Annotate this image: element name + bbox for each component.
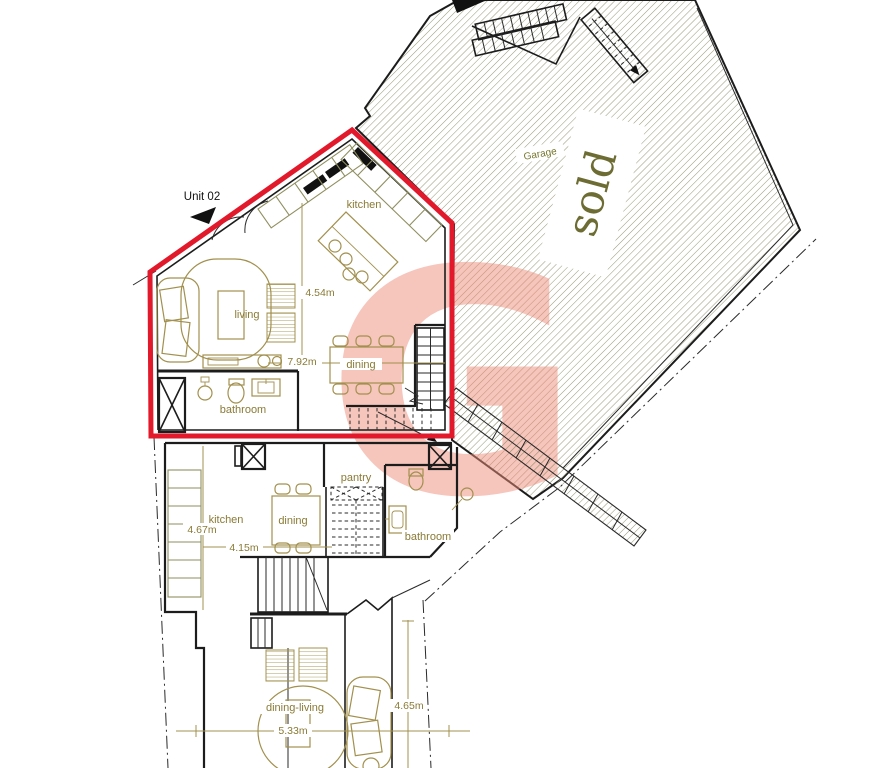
basin xyxy=(198,386,212,400)
dim-label-792: 7.92m xyxy=(287,356,316,368)
room-label-living: living xyxy=(234,309,259,321)
shelf-unit xyxy=(299,648,327,681)
room-label-bathroom-ff: bathroom xyxy=(405,531,451,543)
dim-label-533: 5.33m xyxy=(278,725,307,737)
shaft-box xyxy=(235,444,265,469)
ground-floor-area: dining-living 5.33m 4.65m xyxy=(176,557,470,768)
unit02-pointer-icon xyxy=(190,207,216,224)
floor-plan-page: Garage sold G xyxy=(0,0,874,768)
dim-label-467: 4.67m xyxy=(187,524,216,536)
room-label-bathroom-unit02: bathroom xyxy=(220,404,266,416)
room-label-dining-ff: dining xyxy=(278,515,307,527)
dim-label-454: 4.54m xyxy=(305,287,334,299)
entry-door-arc xyxy=(212,217,244,240)
living-sofa xyxy=(157,278,199,362)
shaft-box xyxy=(159,378,185,432)
room-label-pantry: pantry xyxy=(341,472,372,484)
toilet xyxy=(228,379,244,403)
unit02-label: Unit 02 xyxy=(184,191,220,203)
dim-label-465: 4.65m xyxy=(394,700,423,712)
wall xyxy=(165,443,204,768)
gf-stairs xyxy=(258,557,328,612)
sideboard xyxy=(203,355,282,368)
shelf-unit xyxy=(266,650,294,681)
gf-sofa xyxy=(347,677,391,768)
chimney xyxy=(251,618,272,648)
dim-label-415: 4.15m xyxy=(229,542,258,554)
room-label-dining-living: dining-living xyxy=(266,702,324,714)
boundary-right-lower xyxy=(423,600,431,768)
vanity xyxy=(252,379,280,396)
shelf-unit xyxy=(267,313,295,342)
room-label-kitchen-unit02: kitchen xyxy=(347,199,382,211)
wall xyxy=(392,580,430,598)
shelf-unit xyxy=(267,284,295,308)
room-label-dining-unit02: dining xyxy=(346,359,375,371)
floor-plan-canvas: Garage sold G xyxy=(0,0,874,768)
